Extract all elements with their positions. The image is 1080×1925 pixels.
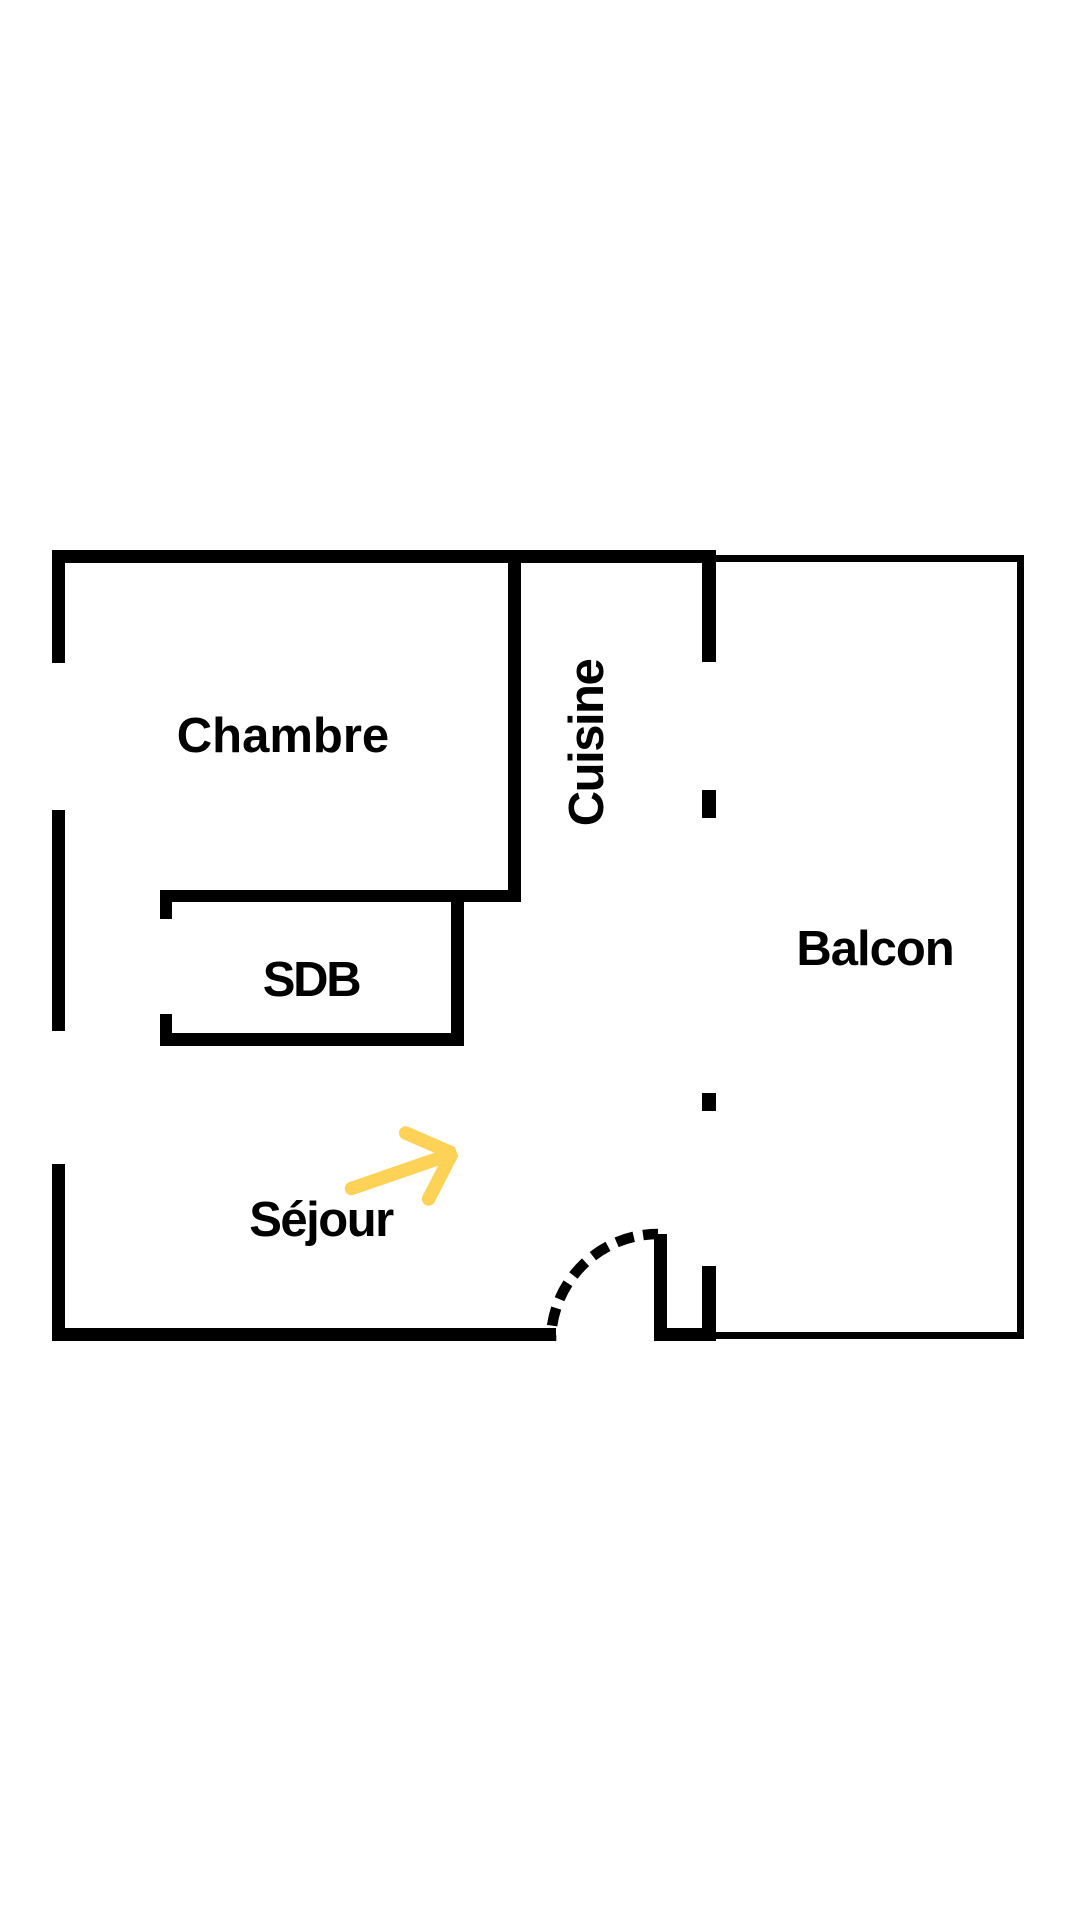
- svg-text:Balcon: Balcon: [796, 922, 953, 976]
- svg-text:Cuisine: Cuisine: [560, 660, 614, 827]
- svg-text:SDB: SDB: [263, 953, 360, 1007]
- svg-text:Chambre: Chambre: [177, 709, 389, 763]
- svg-text:Séjour: Séjour: [249, 1193, 394, 1247]
